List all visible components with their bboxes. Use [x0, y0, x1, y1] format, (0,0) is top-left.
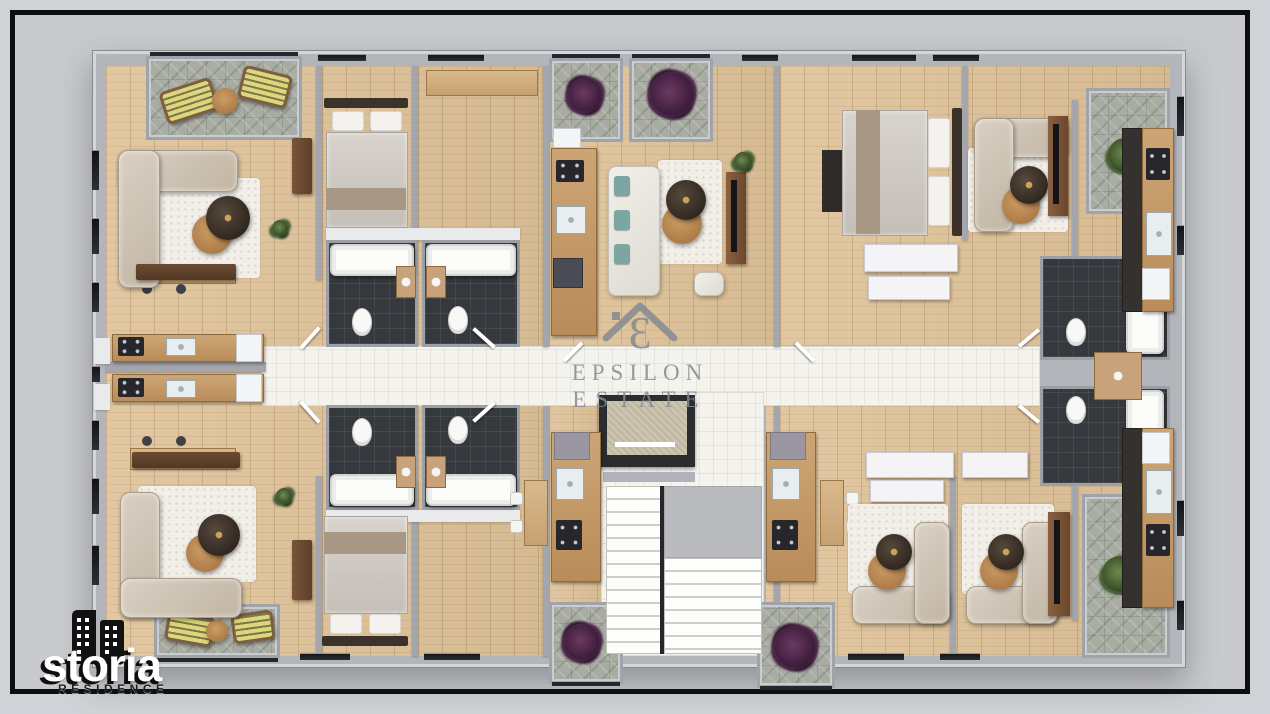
chair [510, 520, 523, 533]
toilet [352, 418, 372, 446]
coffee-table [206, 196, 250, 240]
kitchen-sink [556, 468, 584, 500]
window [300, 653, 350, 660]
wardrobe [866, 452, 954, 478]
window [848, 653, 904, 660]
window [933, 54, 979, 61]
logo-wordmark: storia storia [42, 638, 202, 688]
kitchen-cabinets [1122, 128, 1144, 312]
toilet [448, 306, 468, 334]
purple-plant [650, 72, 694, 116]
stove [118, 337, 144, 356]
logo-subtitle: RESIDENCE [58, 682, 169, 696]
stove [1146, 524, 1170, 556]
sink-vanity [1094, 352, 1142, 400]
kitchen-sink [166, 380, 196, 398]
balcony-rail [760, 686, 832, 690]
window [940, 653, 980, 660]
partition-wall [774, 66, 780, 347]
fridge [553, 128, 581, 148]
pillow [369, 614, 401, 634]
bed [324, 98, 408, 230]
window [92, 150, 99, 190]
purple-plant [564, 624, 600, 660]
tv [731, 180, 737, 252]
bed-throw [326, 188, 406, 210]
toilet [1066, 318, 1086, 346]
chair [510, 492, 523, 505]
headboard [324, 98, 408, 108]
chair [176, 284, 186, 294]
epsilon-estate-watermark: Ɛ EPSILON ESTATE [552, 298, 728, 413]
partition-wall [950, 476, 956, 656]
watermark-line1: EPSILON [552, 360, 728, 386]
window [1177, 500, 1184, 536]
sofa [120, 578, 242, 618]
purple-plant [774, 626, 816, 668]
purple-plant [568, 78, 602, 112]
partition-wall [1072, 100, 1078, 280]
stove [556, 160, 584, 182]
coffee-table [666, 180, 706, 220]
stair-rail [660, 486, 664, 654]
fridge [553, 258, 583, 288]
pillow [614, 244, 630, 264]
chair [142, 436, 152, 446]
stove [118, 378, 144, 397]
wardrobe [962, 452, 1028, 478]
wardrobe [864, 244, 958, 272]
fridge [1142, 268, 1170, 300]
balcony-rail [632, 54, 710, 58]
desk [426, 70, 538, 96]
blanket [842, 110, 928, 236]
window [1177, 600, 1184, 630]
sink-vanity [426, 456, 446, 488]
headboard [322, 636, 408, 646]
elevator-sill [615, 442, 675, 447]
bed-throw [856, 110, 880, 234]
kitchen-sink [1146, 212, 1172, 256]
kitchen-sink [166, 338, 196, 356]
balcony-rail [552, 682, 620, 686]
dining-table [820, 480, 844, 546]
stove [1146, 148, 1170, 180]
blanket [324, 516, 408, 614]
bed [322, 514, 408, 646]
pillow [332, 111, 364, 131]
sideboard [136, 264, 236, 280]
fridge [236, 374, 262, 402]
blanket [326, 132, 408, 228]
tv [1053, 124, 1059, 204]
coffee-table [1010, 166, 1048, 204]
stairs-flight [664, 558, 762, 654]
window [1177, 96, 1184, 136]
armchair [694, 272, 724, 296]
window [852, 54, 916, 61]
coffee-table [198, 514, 240, 556]
window [92, 545, 99, 585]
partition-wall [316, 66, 322, 280]
partition-wall [412, 66, 418, 240]
window [428, 54, 484, 61]
kitchen-cabinets [1122, 428, 1144, 608]
window [742, 54, 778, 61]
window [424, 653, 480, 660]
entrance-door [94, 338, 110, 364]
kitchen-sink [1146, 470, 1172, 514]
stove [556, 520, 582, 550]
sofa [914, 522, 950, 624]
sink-vanity [426, 266, 446, 298]
balcony-rail [552, 54, 620, 58]
dresser [292, 540, 312, 600]
pillow [330, 614, 362, 634]
toilet [1066, 396, 1086, 424]
entrance-window [92, 366, 100, 382]
balcony-rail [150, 52, 298, 56]
epsilon-house-icon: Ɛ [552, 298, 728, 356]
pillow [928, 118, 950, 168]
stairs-flight [606, 486, 664, 654]
kitchen-cabinet [554, 432, 590, 460]
balcony-table [206, 620, 228, 642]
sideboard [132, 452, 240, 468]
window [92, 420, 99, 450]
dresser [292, 138, 312, 194]
kitchen-sink [772, 468, 800, 500]
pillow [370, 111, 402, 131]
wardrobe [870, 480, 944, 502]
window [92, 478, 99, 514]
green-plant [276, 488, 292, 504]
pillow [928, 176, 950, 226]
pillow [614, 176, 630, 196]
elevator-landing [603, 472, 695, 482]
pillow [614, 210, 630, 230]
tv [1054, 520, 1060, 604]
kitchen-cabinet [770, 432, 806, 460]
sink-vanity [396, 456, 416, 488]
dining-table [524, 480, 548, 546]
chair [176, 436, 186, 446]
coffee-table [988, 534, 1024, 570]
partition-wall [106, 362, 266, 372]
wardrobe [868, 276, 950, 300]
coffee-table [876, 534, 912, 570]
window [1177, 225, 1184, 255]
toilet [448, 416, 468, 444]
headboard [952, 108, 962, 236]
fridge [1142, 432, 1170, 464]
stairs-landing [664, 486, 762, 558]
epsilon-glyph: Ɛ [552, 306, 728, 359]
stove [772, 520, 798, 550]
green-plant [272, 220, 288, 236]
window [92, 218, 99, 254]
balcony-table [212, 88, 238, 114]
kitchen-sink [556, 206, 586, 234]
watermark-line2: ESTATE [552, 387, 728, 413]
bed [840, 108, 962, 236]
toilet [352, 308, 372, 336]
window [318, 54, 366, 61]
bed-throw [324, 532, 406, 554]
window [92, 282, 99, 312]
entrance-door [94, 384, 110, 410]
sink-vanity [396, 266, 416, 298]
fridge [236, 334, 262, 362]
green-plant [734, 152, 752, 170]
